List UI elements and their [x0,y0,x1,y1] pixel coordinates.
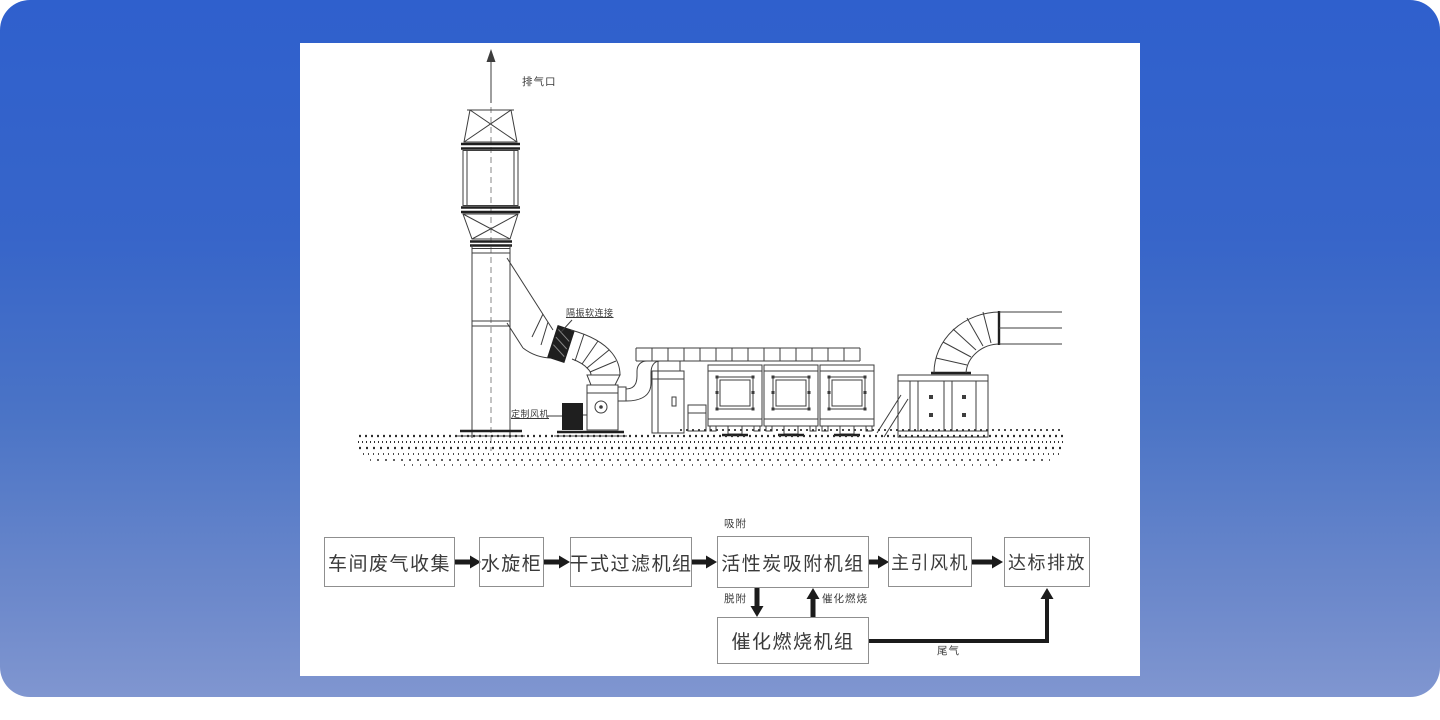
flow-box-catalytic-combustion-unit: 催化燃烧机组 [717,617,869,664]
right-cabinet-and-inlet-duct [877,311,1062,437]
annotation-desorption: 脱附 [724,591,747,606]
chimney-stack [457,49,525,451]
annotation-catalytic-combustion: 催化燃烧 [822,591,868,606]
custom-fan-assembly [547,361,660,436]
flow-box-water-spin-cabinet: 水旋柜 [479,537,544,587]
flow-box-dry-filter-unit: 干式过滤机组 [570,537,692,587]
inclined-duct-and-flex-connection [507,258,620,385]
label-exhaust-outlet: 排气口 [522,74,557,89]
label-custom-fan: 定制风机 [511,407,549,420]
label-flex-connection: 隔振软连接 [566,306,614,319]
flow-box-carbon-adsorption-unit: 活性炭吸附机组 [717,536,869,588]
annotation-tail-gas: 尾气 [937,643,960,658]
horizontal-duct-run [636,348,860,361]
flow-box-compliant-discharge: 达标排放 [1004,537,1090,587]
inline-cabinet [652,361,706,433]
app-background: 排气口 隔振软连接 定制风机 吸附 脱附 催化燃烧 尾气 车间废气收集 水旋柜 … [0,0,1440,697]
adsorption-units [708,365,874,435]
diagram-panel: 排气口 隔振软连接 定制风机 吸附 脱附 催化燃烧 尾气 车间废气收集 水旋柜 … [300,43,1140,676]
ground-hatching [355,430,1063,465]
flow-box-main-fan: 主引风机 [888,537,972,587]
flow-box-workshop-collection: 车间废气收集 [324,537,455,587]
annotation-adsorption: 吸附 [724,516,747,531]
